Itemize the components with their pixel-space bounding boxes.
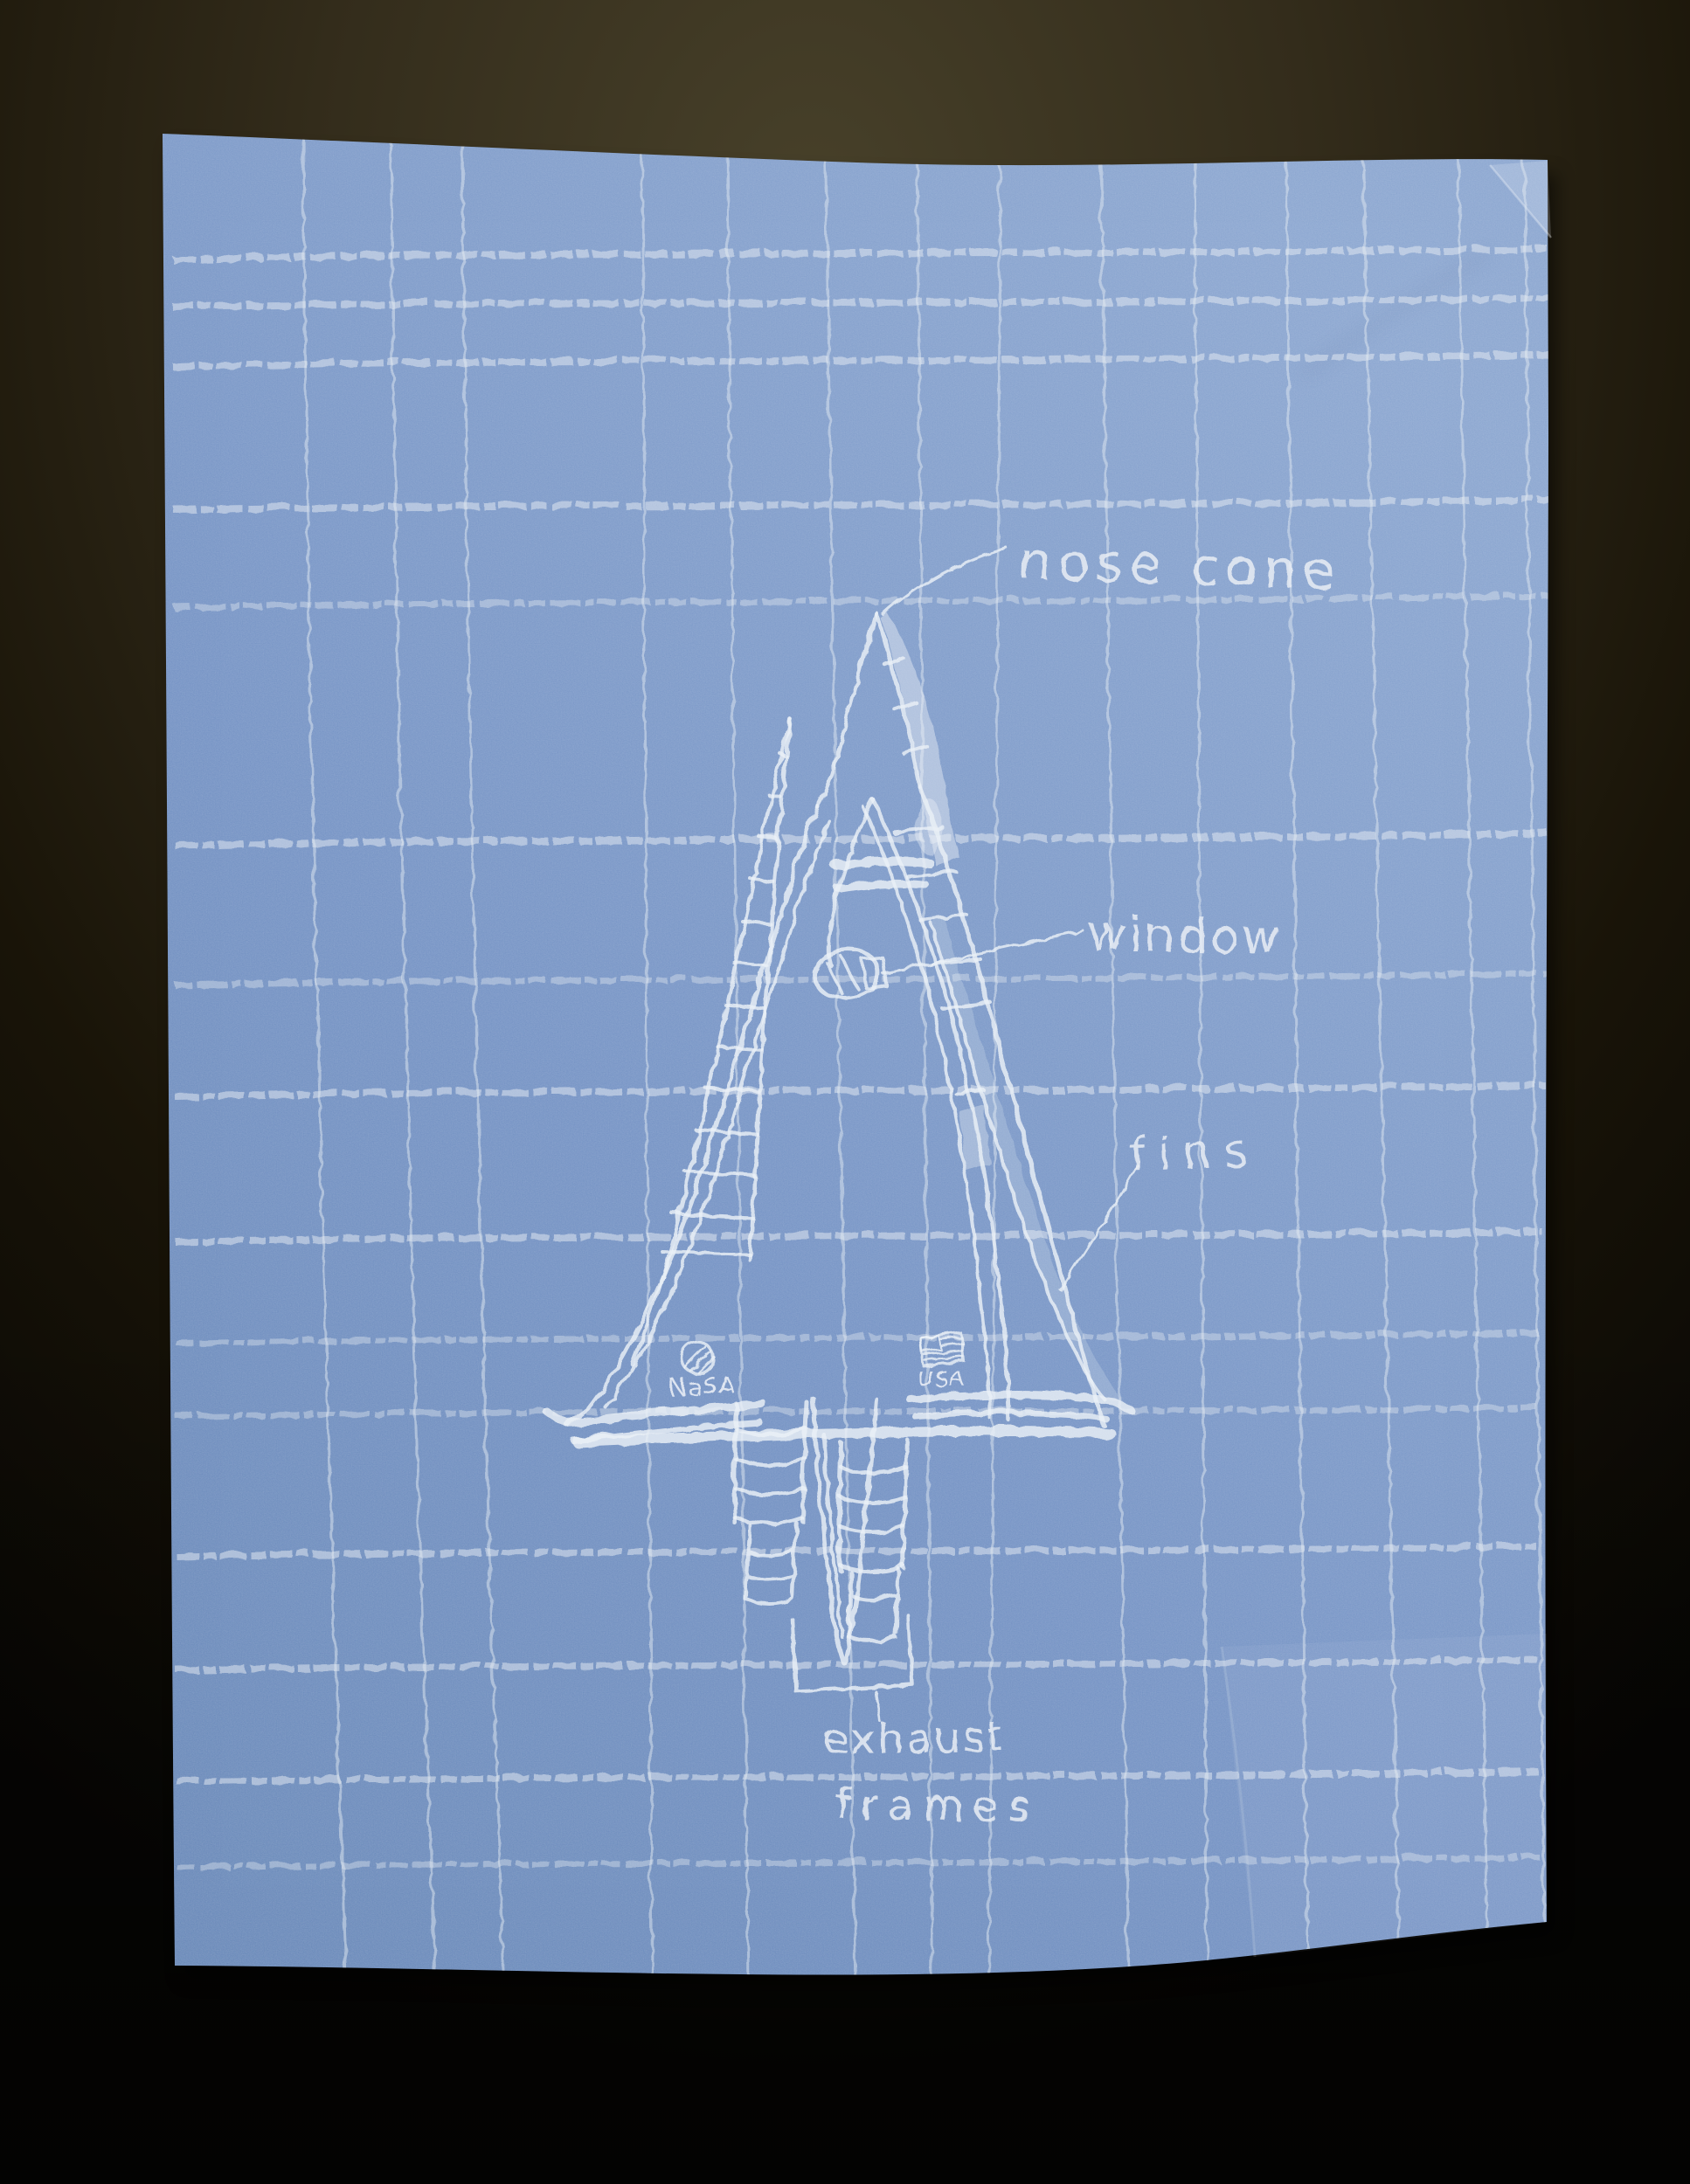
exhaust-frames-label-line1: exhaust xyxy=(821,1711,1004,1763)
blueprint-scene: NaSA USA xyxy=(0,0,1690,2184)
usa-text: USA xyxy=(917,1365,965,1391)
nose-cone-label: nose cone xyxy=(1015,529,1340,601)
photo-rocket-blueprint: NaSA USA xyxy=(0,0,1690,2184)
nasa-text: NaSA xyxy=(667,1371,735,1400)
fins-label: fins xyxy=(1127,1123,1259,1180)
window-label: window xyxy=(1086,905,1282,964)
exhaust-frames-label-line2: frames xyxy=(835,1779,1039,1831)
